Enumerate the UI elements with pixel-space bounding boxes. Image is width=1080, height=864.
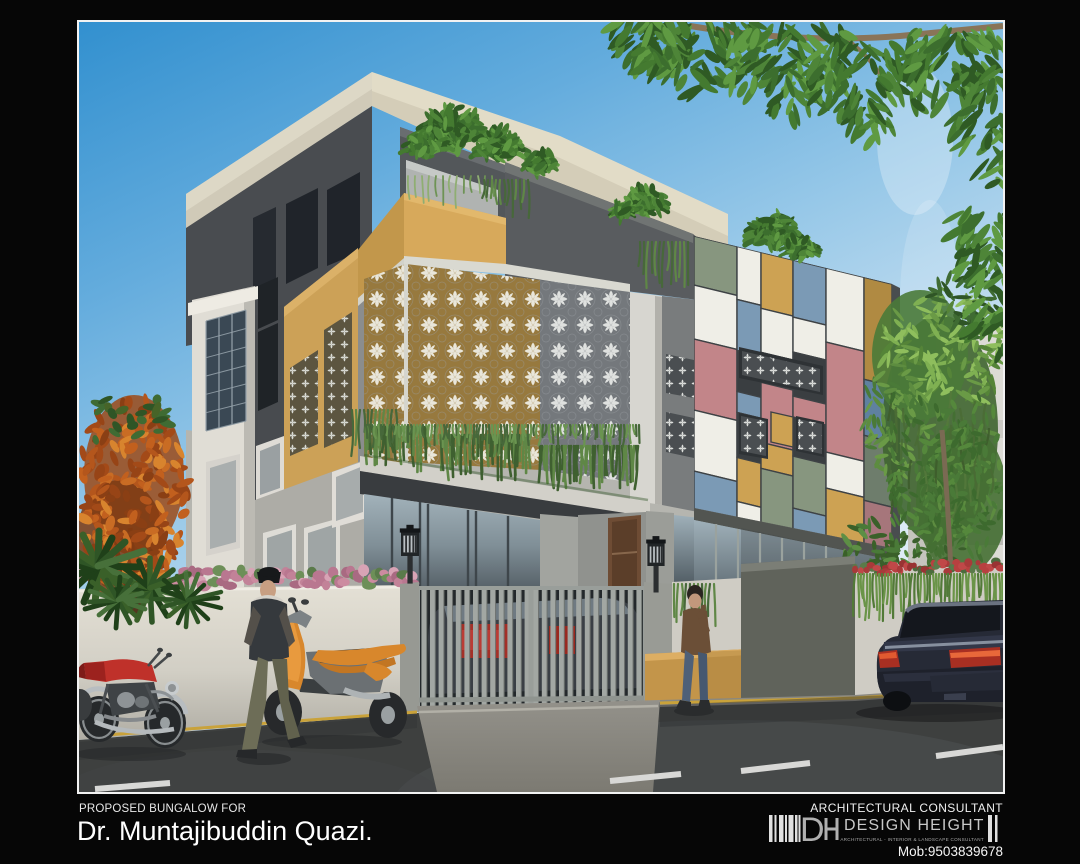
svg-text:D: D <box>800 811 825 849</box>
svg-text:Dr. Muntajibuddin Quazi.: Dr. Muntajibuddin Quazi. <box>77 816 373 846</box>
svg-text:PROPOSED BUNGALOW FOR: PROPOSED BUNGALOW FOR <box>79 803 246 815</box>
svg-text:ARCHITECTURAL - INTERIOR & LAN: ARCHITECTURAL - INTERIOR & LANDSCAPE CON… <box>840 837 984 842</box>
svg-text:DESIGN HEIGHT: DESIGN HEIGHT <box>844 817 985 834</box>
svg-text:Mob:9503839678: Mob:9503839678 <box>898 844 1003 859</box>
svg-text:ARCHITECTURAL CONSULTANT: ARCHITECTURAL CONSULTANT <box>810 801 1003 815</box>
